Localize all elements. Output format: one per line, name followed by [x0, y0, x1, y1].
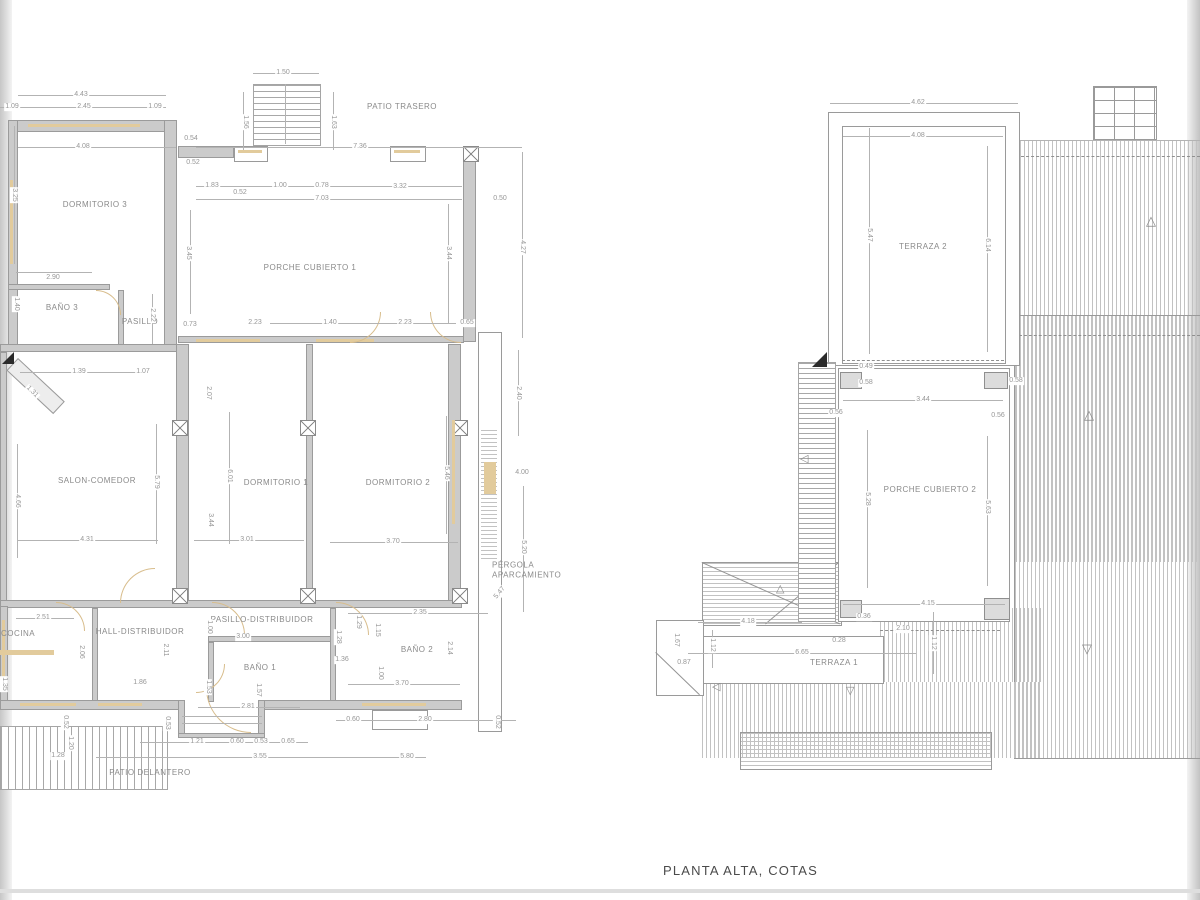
dim-label: 0.52 — [493, 714, 501, 730]
dim-label: 0.65 — [459, 319, 475, 327]
wall — [208, 636, 332, 642]
dim-label: 0.52 — [61, 714, 69, 730]
room-label: PASILLO-DISTRIBUIDOR — [211, 615, 314, 625]
dim-label: 0.56 — [990, 412, 1006, 420]
slope-arrow-up-icon: △ — [1146, 214, 1156, 227]
sheet-title: PLANTA ALTA, COTAS — [663, 863, 818, 878]
terrace-edge-dashed — [842, 360, 1004, 361]
dim-label: 3.01 — [239, 536, 255, 544]
dim-label: 1.35 — [0, 676, 8, 692]
stair-direction-marker — [812, 352, 827, 367]
dim-label: 3.32 — [392, 183, 408, 191]
window — [452, 420, 455, 524]
wall — [164, 120, 177, 348]
dim-label: 6.14 — [983, 237, 991, 253]
dim-label: 1.00 — [376, 665, 384, 681]
dim-label: 4.66 — [13, 493, 21, 509]
dim-label: 5.80 — [399, 753, 415, 761]
dim-label: 0.56 — [828, 409, 844, 417]
roof-ridge-dashed — [1016, 156, 1200, 157]
wall — [178, 700, 185, 736]
room-label: BAÑO 2 — [401, 645, 433, 655]
dim-label: 0.60 — [229, 738, 245, 746]
room-label: PORCHE CUBIERTO 2 — [884, 485, 977, 495]
dim-label: 2.81 — [240, 703, 256, 711]
room-label: PATIO DELANTERO — [109, 768, 190, 778]
dim-label: 2.06 — [77, 644, 85, 660]
dim-label: 1.36 — [334, 656, 350, 664]
dim-label: 0.50 — [492, 195, 508, 203]
dim-label: 1.07 — [135, 368, 151, 376]
dim-label: 1.29 — [354, 614, 362, 630]
dim-label: 2.22 — [148, 307, 156, 323]
window — [394, 150, 420, 153]
dim-label: 1.15 — [373, 622, 381, 638]
wall — [463, 146, 476, 342]
dimension-line — [18, 147, 176, 148]
dim-label: 0.54 — [183, 135, 199, 143]
porch-pillar — [984, 372, 1008, 389]
dim-label: 4.27 — [518, 239, 526, 255]
slope-arrow-left-icon: ◁ — [800, 454, 808, 465]
dim-label: 1.53 — [204, 679, 212, 695]
room-label: HALL-DISTRIBUIDOR — [96, 627, 185, 637]
dim-label: 1.09 — [4, 103, 20, 111]
wall — [258, 700, 265, 736]
dim-label: 1.12 — [708, 637, 716, 653]
room-label: BAÑO 3 — [46, 303, 78, 313]
dim-label: 0.58 — [1008, 377, 1024, 385]
dim-label: 1.50 — [275, 69, 291, 77]
dim-label: 0.52 — [232, 189, 248, 197]
dim-label: 3.44 — [206, 512, 214, 528]
dim-label: 5.20 — [519, 539, 527, 555]
pillar — [463, 146, 479, 162]
dim-label: 4.15 — [920, 600, 936, 608]
window — [20, 703, 76, 706]
dim-label: 0.73 — [182, 321, 198, 329]
roof-hatch — [740, 732, 992, 770]
pillar — [300, 420, 316, 436]
step-line — [182, 723, 262, 724]
dim-label: 1.40 — [12, 296, 20, 312]
dim-label: 4.62 — [910, 99, 926, 107]
slope-arrow-down-icon: ▽ — [846, 686, 854, 697]
slope-arrow-down-icon: ▽ — [1082, 642, 1092, 655]
slope-arrow-up-icon: △ — [1084, 408, 1094, 421]
dim-label: 0.78 — [314, 182, 330, 190]
dim-label: 3.45 — [184, 245, 192, 261]
window — [196, 339, 260, 342]
dim-label: 4.08 — [75, 143, 91, 151]
dim-label: 1.40 — [322, 319, 338, 327]
dim-label: 1.12 — [929, 635, 937, 651]
dim-label: 1.57 — [254, 682, 262, 698]
dim-label: 1.28 — [334, 629, 342, 645]
dim-label: 0.53 — [163, 715, 171, 731]
room-label: TERRAZA 2 — [899, 242, 947, 252]
dim-label: 1.83 — [204, 182, 220, 190]
page-edge-bottom — [0, 889, 1200, 893]
dim-label: 4.08 — [910, 132, 926, 140]
wall — [0, 344, 178, 352]
dim-label: 5.47 — [865, 227, 873, 243]
dim-label: 7.03 — [314, 195, 330, 203]
stair-direction-marker — [2, 352, 14, 364]
pillar — [452, 588, 468, 604]
dim-label: 6.65 — [794, 649, 810, 657]
room-label: DORMITORIO 2 — [366, 478, 431, 488]
dim-label: 2.51 — [35, 614, 51, 622]
step-line — [182, 716, 262, 717]
dim-label: 0.60 — [345, 716, 361, 724]
room-label: PORCHE CUBIERTO 1 — [264, 263, 357, 273]
dim-label: 5.79 — [152, 474, 160, 490]
dim-label: 1.00 — [205, 619, 213, 635]
dim-label: 4.00 — [514, 469, 530, 477]
dimension-line — [270, 323, 456, 324]
wall — [260, 700, 462, 710]
stairs-rail — [285, 84, 286, 144]
window — [362, 703, 426, 706]
dim-label: 0.53 — [253, 738, 269, 746]
dim-label: 3.44 — [444, 245, 452, 261]
pillar — [300, 588, 316, 604]
dim-label: 0.58 — [858, 379, 874, 387]
roof-edge — [1016, 140, 1200, 141]
dimension-line — [18, 95, 166, 96]
wall — [8, 284, 110, 290]
floor-plan-sheet: △ △ ▽ △ ◁ ◁ ▽ PATIO TRASERODORMITORIO 3B… — [0, 0, 1200, 900]
dim-label: 2.80 — [417, 716, 433, 724]
dim-label: 0.52 — [185, 159, 201, 167]
wall — [176, 344, 189, 606]
pillar — [172, 420, 188, 436]
slope-arrow-up-icon: △ — [776, 584, 784, 595]
dimension-line — [448, 204, 449, 324]
door-arc — [120, 568, 155, 603]
dimension-line — [867, 430, 868, 588]
dim-label: 4.18 — [740, 618, 756, 626]
dim-label: 3.70 — [385, 538, 401, 546]
dim-label: 5.28 — [863, 491, 871, 507]
dim-label: 4.43 — [73, 91, 89, 99]
room-label: DORMITORIO 3 — [63, 200, 128, 210]
dim-label: 1.28 — [50, 752, 66, 760]
dim-label: 5.46 — [442, 465, 450, 481]
chimney — [1093, 86, 1157, 140]
room-label: DORMITORIO 1 — [244, 478, 309, 488]
room-label: BAÑO 1 — [244, 663, 276, 673]
window — [28, 124, 140, 127]
dim-label: 3.70 — [394, 680, 410, 688]
room-label: COCINA — [1, 629, 35, 639]
dim-label: 2.90 — [45, 274, 61, 282]
dim-label: 2.14 — [445, 640, 453, 656]
dim-label: 2.10 — [895, 625, 911, 633]
dim-label: 3.25 — [10, 187, 18, 203]
stairs — [798, 362, 836, 622]
dim-label: 2.35 — [412, 609, 428, 617]
room-label: TERRAZA 1 — [810, 658, 858, 668]
dim-label: 5.63 — [983, 499, 991, 515]
fireplace — [6, 358, 64, 414]
dim-label: 2.23 — [247, 319, 263, 327]
dim-label: 0.49 — [858, 363, 874, 371]
dim-label: 4.31 — [79, 536, 95, 544]
dim-label: 2.40 — [514, 385, 522, 401]
dim-label: 2.45 — [76, 103, 92, 111]
room-label: PÉRGOLA APARCAMIENTO — [492, 561, 564, 582]
dim-label: 3.55 — [252, 753, 268, 761]
dim-label: 2.11 — [161, 642, 169, 657]
dim-label: 1.21 — [189, 738, 205, 746]
dim-label: 1.39 — [71, 368, 87, 376]
dim-label: 1.56 — [241, 114, 249, 130]
stairs — [0, 726, 168, 790]
dim-label: 1.86 — [132, 679, 148, 687]
window — [238, 150, 262, 153]
dimension-line — [190, 210, 191, 314]
window — [98, 703, 142, 706]
slope-arrow-left-icon: ◁ — [712, 682, 720, 693]
dim-label: 2.07 — [204, 385, 212, 401]
dim-label: 0.87 — [676, 659, 692, 667]
window — [316, 339, 374, 342]
dim-label: 3.44 — [915, 396, 931, 404]
stairs — [253, 84, 321, 146]
wall — [92, 608, 98, 704]
dim-label: 7.36 — [352, 143, 368, 151]
pergola-hatch — [481, 430, 497, 560]
dim-label: 1.09 — [147, 103, 163, 111]
kitchen-counter — [0, 650, 54, 655]
window-frame — [390, 146, 426, 162]
pillar — [172, 588, 188, 604]
dim-label: 6.01 — [225, 468, 233, 484]
room-label: SALON-COMEDOR — [58, 476, 136, 486]
dim-label: 1.00 — [272, 182, 288, 190]
dim-label: 1.20 — [66, 735, 74, 751]
porch-pillar — [984, 598, 1010, 620]
wall — [0, 352, 7, 606]
dim-label: 3.00 — [235, 633, 251, 641]
dim-label: 1.67 — [672, 632, 680, 648]
pergola-support — [484, 462, 496, 494]
room-label: PATIO TRASERO — [367, 102, 437, 112]
roof-ridge-dashed — [1014, 335, 1200, 336]
dim-label: 0.36 — [856, 613, 872, 621]
dim-label: 0.28 — [831, 637, 847, 645]
window-frame — [234, 146, 268, 162]
dim-label: 1.63 — [329, 114, 337, 130]
dim-label: 2.23 — [397, 319, 413, 327]
dim-label: 0.65 — [280, 738, 296, 746]
dimension-line — [16, 272, 92, 273]
wall — [306, 344, 313, 606]
